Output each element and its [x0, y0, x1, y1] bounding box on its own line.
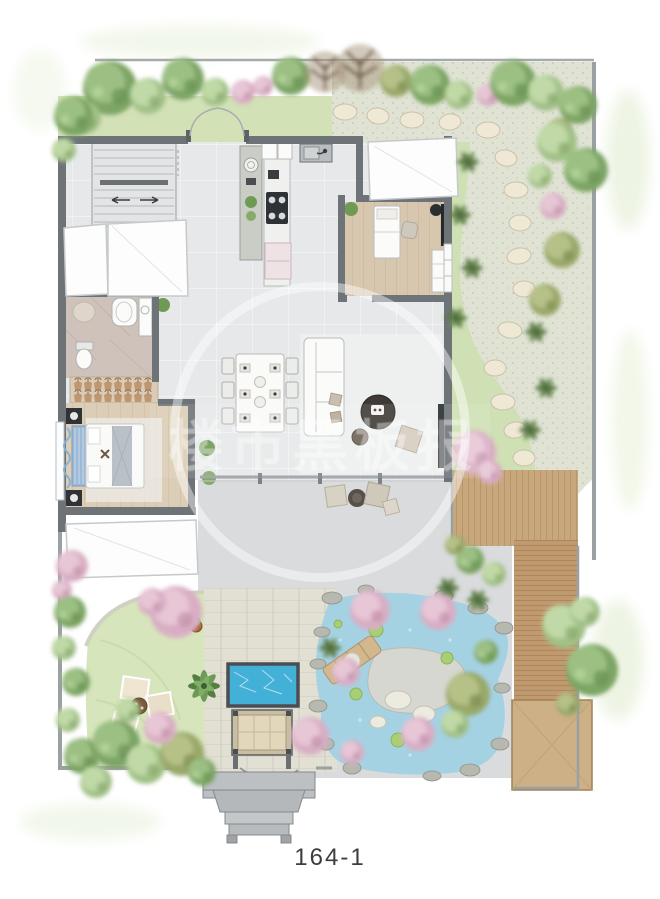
floor-plan-rendering: [0, 0, 660, 899]
bedroom1: [66, 408, 162, 506]
round-table2: [430, 204, 442, 216]
chair2: [401, 221, 419, 239]
plunge-pool: [228, 664, 298, 706]
deck-upper: [452, 470, 578, 546]
floor-plan-figure: 楼市黑板报 164-1: [0, 0, 660, 899]
staircase: [92, 142, 178, 226]
dining-set: [222, 354, 298, 432]
entry-porch: [203, 772, 315, 843]
window-west: [56, 422, 64, 500]
toilet: [76, 342, 93, 369]
cooktop: [266, 192, 288, 224]
vanity: [139, 298, 152, 336]
side-table: [352, 429, 368, 445]
window-east: [444, 244, 452, 292]
coffee-machine: [268, 170, 279, 179]
palm-tree: [188, 670, 220, 702]
